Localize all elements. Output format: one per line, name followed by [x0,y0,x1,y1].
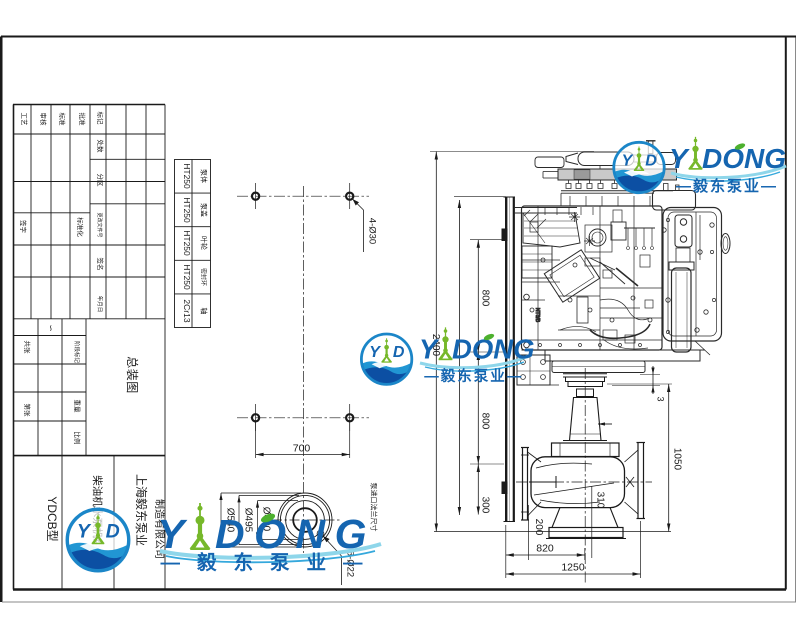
svg-text:HT250: HT250 [182,230,192,256]
svg-text:标准化: 标准化 [76,217,85,237]
svg-text:重量: 重量 [73,400,81,414]
svg-text:DONG: DONG [215,511,376,557]
svg-text:总装图: 总装图 [125,356,139,394]
svg-text:更改文件号: 更改文件号 [96,212,103,237]
svg-text:处数: 处数 [96,140,105,154]
svg-text:标准: 标准 [58,113,67,127]
svg-text:年月日: 年月日 [96,296,104,313]
svg-text:—毅东泵业—: —毅东泵业— [424,367,523,385]
svg-text:—毅东泵业—: —毅东泵业— [160,551,379,574]
svg-text:NT3/B: NT3/B [534,308,540,323]
svg-text:批准: 批准 [78,113,87,127]
svg-text:泵盖: 泵盖 [200,203,209,217]
svg-text:YDCB型: YDCB型 [45,496,59,541]
svg-text:Y: Y [157,511,189,557]
svg-text:4-Ø30: 4-Ø30 [367,218,378,244]
svg-text:轴: 轴 [200,308,209,315]
svg-text:300: 300 [480,497,491,514]
svg-text:700: 700 [293,443,311,455]
svg-text:200: 200 [533,519,544,536]
svg-text:DONG: DONG [452,334,535,365]
svg-text:—毅东泵业—: —毅东泵业— [676,177,778,195]
svg-text:820: 820 [536,543,554,555]
svg-text:3: 3 [656,396,666,401]
svg-text:工艺: 工艺 [20,113,28,127]
svg-text:800: 800 [480,413,491,430]
svg-text:800: 800 [480,290,491,307]
svg-text:Y: Y [669,143,690,174]
svg-text:DONG: DONG [702,143,786,174]
svg-text:第张: 第张 [23,404,32,418]
svg-text:∽: ∽ [46,324,56,332]
svg-text:审核: 审核 [39,113,48,127]
svg-text:310: 310 [595,492,606,509]
svg-text:HT250: HT250 [182,264,192,290]
svg-text:签名: 签名 [96,258,105,271]
svg-text:上海毅东泵业: 上海毅东泵业 [134,474,149,546]
svg-text:HT250: HT250 [182,197,192,223]
svg-text:阶段标记: 阶段标记 [73,341,81,364]
svg-text:Y: Y [419,334,440,365]
svg-text:分区: 分区 [96,174,105,188]
svg-text:1050: 1050 [672,448,683,471]
svg-text:签字: 签字 [19,220,28,234]
svg-text:泵体: 泵体 [200,169,209,183]
svg-text:标记: 标记 [96,112,105,126]
svg-text:2Cr13: 2Cr13 [182,299,192,322]
svg-text:共张: 共张 [23,341,32,355]
svg-text:比例: 比例 [73,432,82,445]
svg-text:HT250: HT250 [182,163,192,189]
svg-text:叶轮: 叶轮 [200,236,209,250]
svg-text:1250: 1250 [561,562,585,574]
svg-text:密封环: 密封环 [200,268,208,286]
